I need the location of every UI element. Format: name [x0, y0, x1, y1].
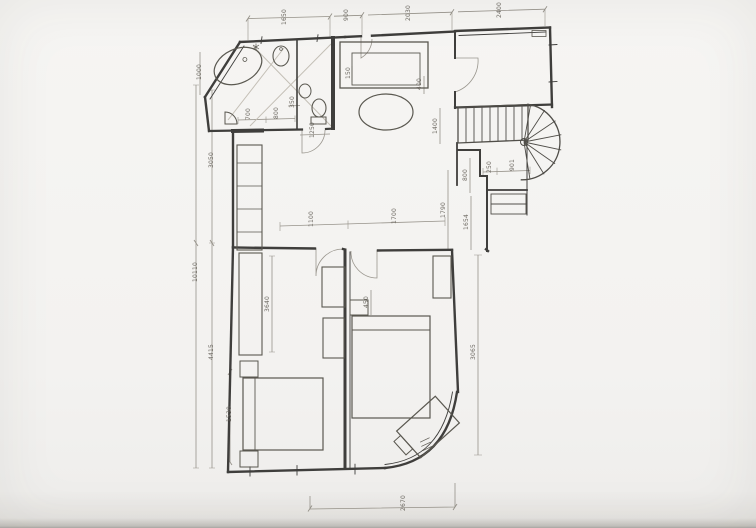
dimension-label: 1650 [281, 4, 289, 30]
dimension-label: 10110 [192, 259, 200, 285]
washbasin [273, 46, 289, 66]
dresser [322, 267, 345, 307]
nightstand [240, 361, 258, 377]
washbasin-tap-icon [280, 48, 283, 51]
dimension-label: 1530 [226, 401, 234, 427]
dimension-label: 3640 [264, 291, 272, 317]
dimension-label: 1700 [391, 203, 399, 229]
dining-table [359, 94, 413, 130]
dimension-label: 1250 [309, 117, 317, 143]
dimension-label: 800 [462, 162, 470, 188]
dimension-label: 1000 [196, 59, 204, 85]
dimension-label: 1790 [440, 197, 448, 223]
dresser [323, 318, 344, 358]
kitchen-counter [340, 42, 428, 88]
nightstand [240, 451, 258, 467]
dimension-label: 1100 [308, 206, 316, 232]
dimension-label: 1654 [463, 209, 471, 235]
dimension-label: 150 [345, 60, 353, 86]
dimension-label: 901 [509, 152, 517, 178]
closet-shelves [237, 145, 262, 250]
scanned-floor-plan-page: 1650 900 2030 2400 10110 3050 4415 1530 … [0, 0, 756, 528]
dimension-label: 900 [343, 2, 351, 28]
dimension-lines [193, 6, 547, 511]
wardrobe-left-bedroom [239, 253, 262, 355]
dimension-label: 2030 [405, 0, 413, 26]
dimension-label: 250 [486, 154, 494, 180]
under-stairs-bench [491, 194, 526, 214]
dimension-label: 2670 [400, 490, 408, 516]
dimension-label: 3065 [470, 339, 478, 365]
door-swings-and-construction [228, 36, 478, 278]
floor-plan-drawing [0, 0, 756, 528]
dimension-label: 700 [245, 101, 253, 127]
corner-basin [299, 84, 311, 98]
bed-right [352, 316, 430, 418]
bathtub [208, 40, 268, 92]
dimension-label: 2400 [496, 0, 504, 23]
dimension-label: 1400 [432, 113, 440, 139]
dimension-label: 3050 [208, 147, 216, 173]
dimension-label: 350 [289, 89, 297, 115]
bed-left [243, 378, 323, 450]
corner-fixture [225, 112, 237, 124]
dimension-label: 400 [416, 71, 424, 97]
dimension-label: 800 [273, 100, 281, 126]
radiator [532, 31, 546, 37]
desk [390, 396, 459, 464]
centre-dividing-wall [345, 250, 350, 468]
straight-stairs [458, 105, 528, 144]
scan-edge-shadow [0, 518, 756, 528]
wardrobe-right-bedroom [433, 256, 451, 298]
dimension-label: 4415 [208, 339, 216, 365]
dimension-label: 450 [363, 289, 371, 315]
